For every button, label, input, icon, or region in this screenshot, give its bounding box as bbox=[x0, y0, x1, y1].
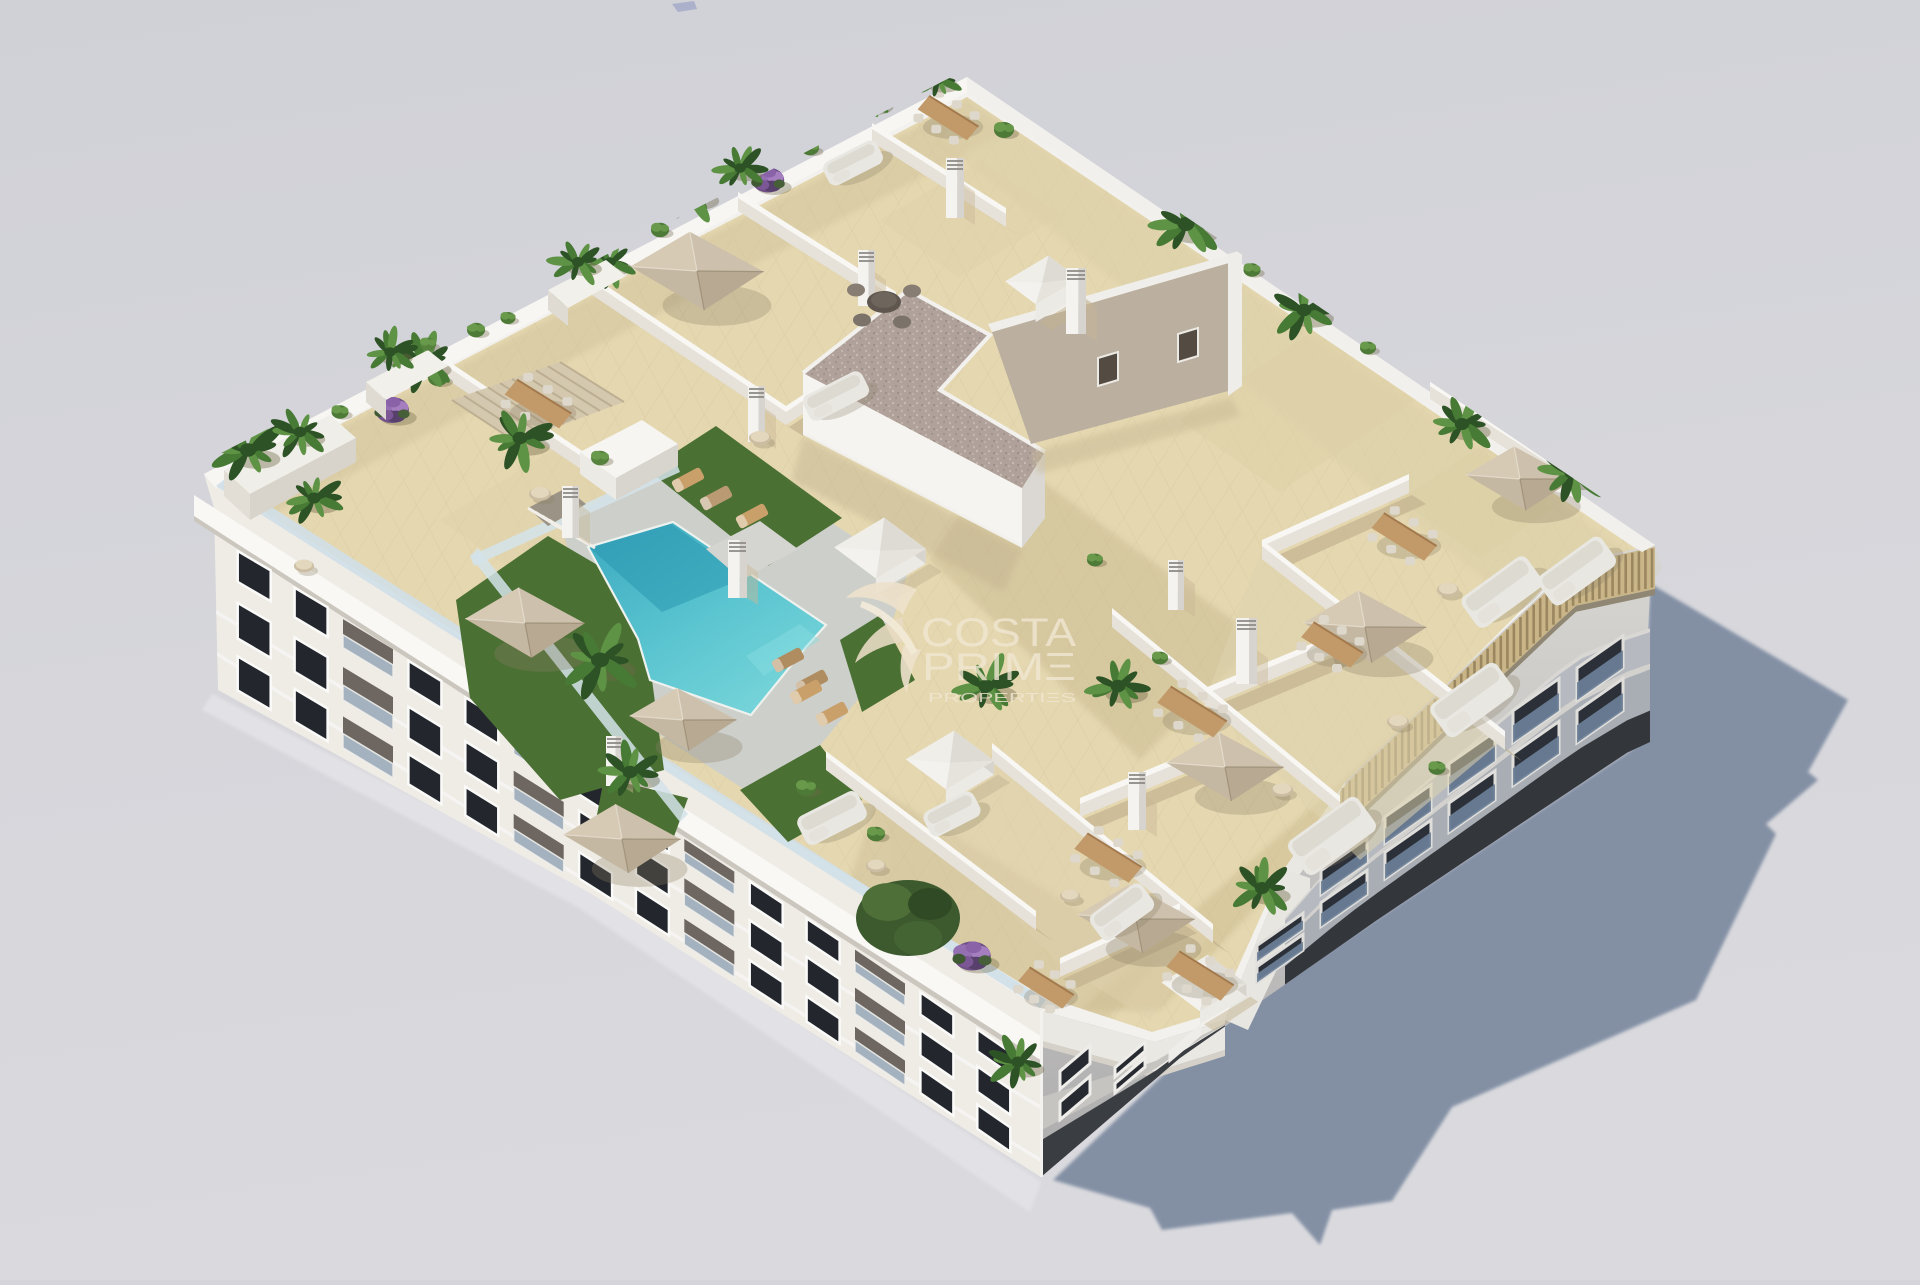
svg-text:PROPERTIΞS: PROPERTIΞS bbox=[928, 691, 1076, 705]
svg-text:PRIMΞ: PRIMΞ bbox=[922, 646, 1076, 689]
